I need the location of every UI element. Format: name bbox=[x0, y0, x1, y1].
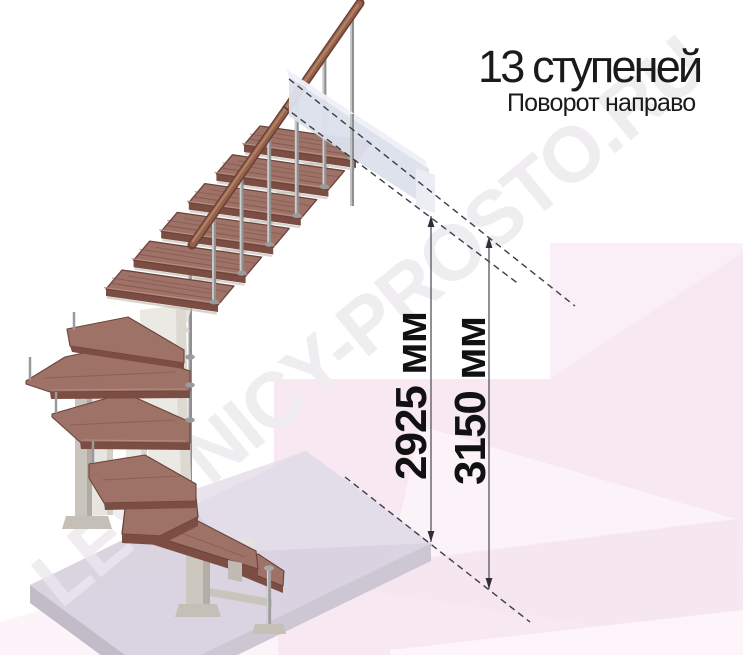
svg-text:3150 мм: 3150 мм bbox=[446, 317, 495, 485]
svg-text:13 ступеней: 13 ступеней bbox=[478, 41, 701, 92]
svg-text:Поворот направо: Поворот направо bbox=[507, 89, 695, 117]
svg-text:2925 мм: 2925 мм bbox=[387, 312, 436, 480]
